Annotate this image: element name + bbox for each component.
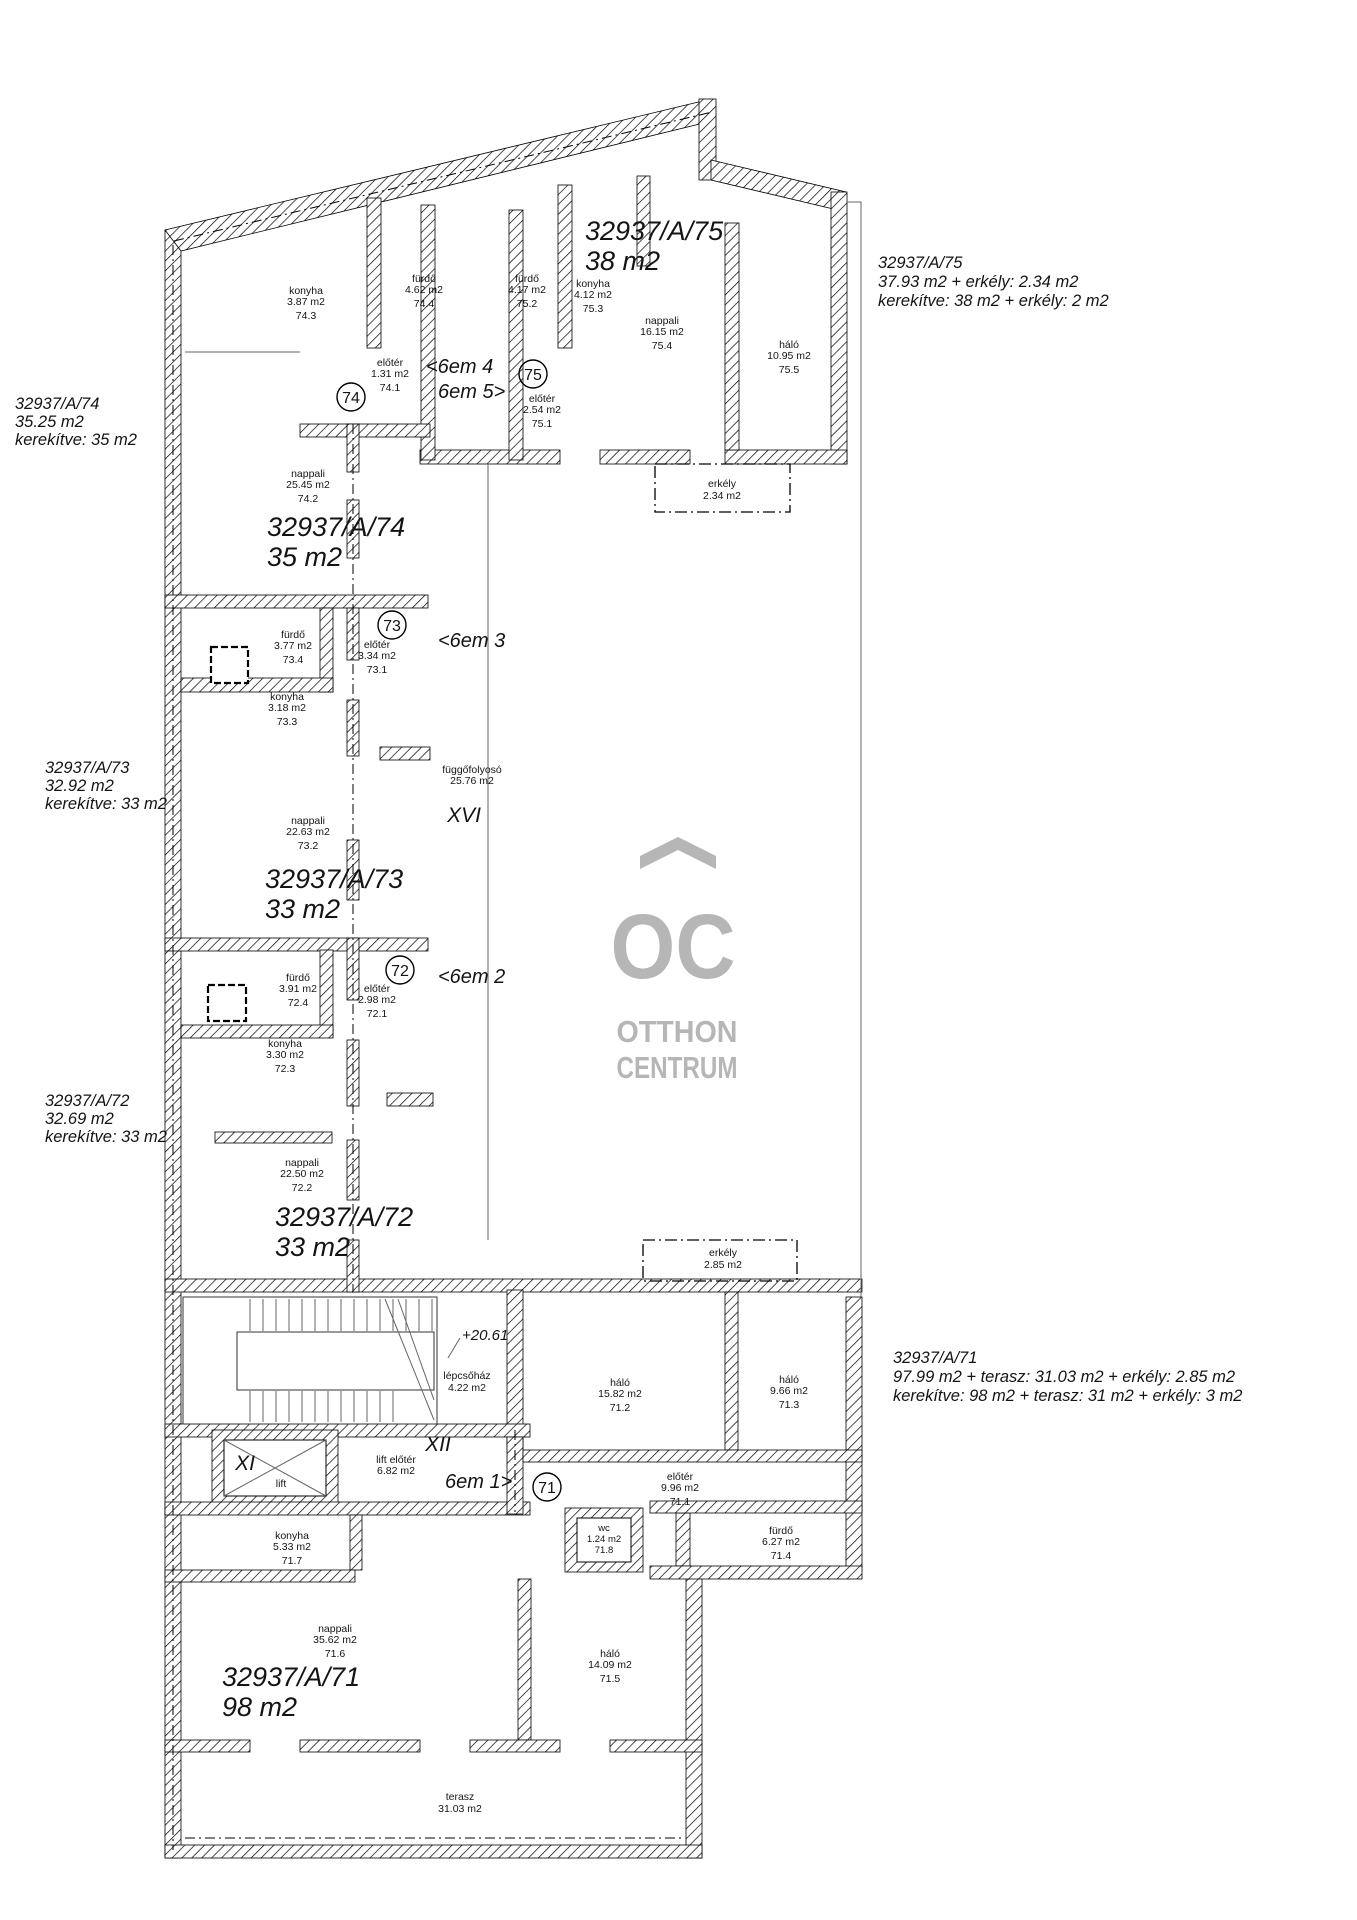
- apt71-annotation-l1: 32937/A/71: [893, 1349, 977, 1367]
- room-74-2-code: 74.2: [298, 493, 319, 505]
- wall-apt74-apt73: [165, 595, 428, 608]
- stair-treads-bottom: [250, 1391, 393, 1422]
- wall-segment: [320, 950, 333, 1037]
- apt73-annotation-l3: kerekítve: 33 m2: [45, 795, 167, 813]
- level-mark-label: +20.61: [462, 1327, 508, 1344]
- apt74-annotation-l3: kerekítve: 35 m2: [15, 431, 137, 449]
- stair-rail: [237, 1332, 434, 1390]
- apt71-annotation-l3: kerekítve: 98 m2 + terasz: 31 m2 + erkél…: [893, 1387, 1242, 1405]
- room-74-3-area: 3.87 m2: [287, 296, 325, 308]
- floor-ref-6em2: <6em 2: [438, 966, 505, 988]
- room-72-2-code: 72.2: [292, 1182, 313, 1194]
- room-71-7-area: 5.33 m2: [273, 1541, 311, 1553]
- room-75-1-area: 2.54 m2: [523, 404, 561, 416]
- room-72-4-code: 72.4: [288, 997, 309, 1009]
- apt72-annotation-l2: 32.69 m2: [45, 1110, 114, 1128]
- unit-number-74: 74: [342, 390, 360, 407]
- wall-segment: [470, 1740, 560, 1752]
- room-73-1-area: 3.34 m2: [358, 650, 396, 662]
- wall-hatch-group: [165, 99, 862, 1858]
- room-71-8-area: 1.24 m2: [587, 1534, 621, 1545]
- room-71-2-area: 15.82 m2: [598, 1388, 642, 1400]
- room-72-1-code: 72.1: [367, 1008, 388, 1020]
- staircase-name: lépcsőház: [443, 1370, 490, 1382]
- apt74-annotation-l1: 32937/A/74: [15, 395, 99, 413]
- unit-number-75: 75: [524, 367, 542, 384]
- terrace-area: 31.03 m2: [438, 1803, 482, 1815]
- room-75-2-area: 4.17 m2: [508, 284, 546, 296]
- room-71-1-area: 9.96 m2: [661, 1482, 699, 1494]
- unit-number-72: 72: [391, 963, 409, 980]
- floor-ref-6em1: 6em 1>: [445, 1471, 512, 1493]
- room-74-1-code: 74.1: [380, 382, 401, 394]
- unit-circle-74: 74: [337, 383, 365, 411]
- room-73-4-area: 3.77 m2: [274, 640, 312, 652]
- staircase-area: 4.22 m2: [448, 1382, 486, 1394]
- apt71-annotation-l2: 97.99 m2 + terasz: 31.03 m2 + erkély: 2.…: [893, 1368, 1235, 1386]
- wall-segment: [725, 223, 739, 450]
- terrace-name: terasz: [446, 1791, 475, 1803]
- apt75-unit-label-l1: 32937/A/75: [585, 216, 724, 246]
- wall-segment: [300, 1740, 420, 1752]
- room-73-2-area: 22.63 m2: [286, 826, 330, 838]
- otthon-centrum-logo: OC OTTHON CENTRUM: [611, 837, 738, 1085]
- room-73-4-code: 73.4: [283, 654, 304, 666]
- wall-segment: [350, 1515, 362, 1570]
- stair-break-line: [398, 1299, 434, 1400]
- side-annotations: 32937/A/74 35.25 m2 kerekítve: 35 m2 329…: [15, 254, 1242, 1405]
- wall-segment: [558, 185, 572, 348]
- right-wall-mid: [846, 1297, 862, 1568]
- room-72-3-code: 72.3: [275, 1063, 296, 1075]
- lift-lobby-area: 6.82 m2: [377, 1465, 415, 1477]
- room-71-3-code: 71.3: [779, 1399, 800, 1411]
- apt71-unit-label-l1: 32937/A/71: [222, 1662, 360, 1692]
- room-75-2-code: 75.2: [517, 298, 538, 310]
- room-73-3-code: 73.3: [277, 716, 298, 728]
- unit-number-73: 73: [383, 618, 401, 635]
- room-73-2-code: 73.2: [298, 840, 319, 852]
- wall-segment: [165, 1570, 355, 1582]
- floorplan-page: OC OTTHON CENTRUM 32937/A/74 35.25 m2 ke…: [0, 0, 1357, 1920]
- wall-segment: [421, 205, 435, 460]
- wall-segment: [610, 1740, 702, 1752]
- wall-segment: [725, 450, 847, 464]
- balcony-75-area: 2.34 m2: [703, 490, 741, 502]
- apt72-annotation-l1: 32937/A/72: [45, 1092, 129, 1110]
- room-74-3-code: 74.3: [296, 310, 317, 322]
- room-71-5-area: 14.09 m2: [588, 1659, 632, 1671]
- wall-segment: [523, 1450, 862, 1462]
- wall-segment: [215, 1132, 332, 1143]
- room-72-3-area: 3.30 m2: [266, 1049, 304, 1061]
- wall-segment: [181, 678, 333, 692]
- room-72-2-area: 22.50 m2: [280, 1168, 324, 1180]
- apt75-annotation-l2: 37.93 m2 + erkély: 2.34 m2: [878, 273, 1078, 291]
- property-line: [847, 202, 861, 1297]
- right-wall-lower: [686, 1568, 702, 1858]
- apt75-annotation-l3: kerekítve: 38 m2 + erkély: 2 m2: [878, 292, 1109, 310]
- room-75-3-code: 75.3: [583, 303, 604, 315]
- logo-line1: OTTHON: [617, 1014, 738, 1049]
- room-75-5-code: 75.5: [779, 364, 800, 376]
- stair-outline: [183, 1297, 437, 1424]
- floor-ref-6em4: <6em 4: [426, 356, 493, 378]
- floor-ref-6em3: <6em 3: [438, 630, 505, 652]
- wall-segment: [367, 198, 381, 348]
- room-75-4-area: 16.15 m2: [640, 326, 684, 338]
- wall-segment: [725, 1292, 738, 1450]
- lift-lobby-roman: XII: [424, 1433, 451, 1456]
- corridor-roman: XVI: [446, 804, 481, 827]
- lift-name: lift: [276, 1478, 287, 1490]
- apt73-annotation-l2: 32.92 m2: [45, 777, 114, 795]
- wall-segment: [420, 450, 560, 464]
- wall-segment: [509, 210, 523, 460]
- floor-ref-6em5: 6em 5>: [438, 381, 505, 403]
- room-71-3-area: 9.66 m2: [770, 1385, 808, 1397]
- wall-apt73-apt72: [165, 938, 428, 951]
- room-71-4-code: 71.4: [771, 1550, 792, 1562]
- unit-circle-75: 75: [519, 360, 547, 388]
- apt73-unit-label-l2: 33 m2: [265, 894, 340, 924]
- floorplan-drawing: OC OTTHON CENTRUM 32937/A/74 35.25 m2 ke…: [0, 0, 1357, 1920]
- wall-segment: [165, 1502, 530, 1515]
- apt73-unit-label-l1: 32937/A/73: [265, 864, 403, 894]
- apt75-annotation-l1: 32937/A/75: [878, 254, 963, 272]
- top-right-wall: [711, 160, 846, 212]
- logo-line2: CENTRUM: [617, 1050, 738, 1085]
- wall-segment: [518, 1579, 531, 1740]
- shaft-duct-72: [208, 985, 246, 1021]
- floor-references: <6em 4 6em 5> <6em 3 <6em 2 6em 1> +20.6…: [426, 356, 512, 1493]
- room-72-4-area: 3.91 m2: [279, 983, 317, 995]
- wall-segment: [387, 1093, 433, 1106]
- room-73-3-area: 3.18 m2: [268, 702, 306, 714]
- room-75-4-code: 75.4: [652, 340, 673, 352]
- balcony-75-name: erkély: [708, 478, 737, 490]
- room-74-2-area: 25.45 m2: [286, 479, 330, 491]
- stair-break-line: [385, 1299, 434, 1420]
- shaft-duct-73: [211, 647, 248, 683]
- room-71-5-code: 71.5: [600, 1673, 621, 1685]
- room-71-2-code: 71.2: [610, 1402, 631, 1414]
- apt74-annotation-l2: 35.25 m2: [15, 413, 84, 431]
- level-mark-tick: [448, 1338, 460, 1358]
- outer-bottom-wall: [165, 1845, 702, 1858]
- room-74-1-area: 1.31 m2: [371, 368, 409, 380]
- apt71-unit-label-l2: 98 m2: [222, 1692, 297, 1722]
- balcony-71-name: erkély: [709, 1247, 738, 1259]
- right-wall-upper: [831, 192, 847, 464]
- room-74-4-area: 4.62 m2: [405, 284, 443, 296]
- room-71-8-name: wc: [597, 1523, 610, 1534]
- apt72-unit-label-l2: 33 m2: [275, 1232, 350, 1262]
- wall-segment: [676, 1513, 690, 1566]
- apt75-unit-label-l2: 38 m2: [585, 246, 660, 276]
- room-74-4-code: 74.4: [414, 298, 435, 310]
- wall-segment: [380, 747, 430, 760]
- corridor-area: 25.76 m2: [450, 775, 494, 787]
- room-71-1-code: 71.1: [670, 1496, 691, 1508]
- unit-circle-73: 73: [378, 611, 406, 639]
- apt73-annotation-l1: 32937/A/73: [45, 759, 130, 777]
- apt74-unit-label-l1: 32937/A/74: [267, 512, 405, 542]
- unit-circle-72: 72: [386, 956, 414, 984]
- room-71-8-code: 71.8: [595, 1545, 614, 1556]
- wall-segment: [650, 1566, 862, 1579]
- room-72-1-area: 2.98 m2: [358, 994, 396, 1006]
- room-71-6-code: 71.6: [325, 1648, 346, 1660]
- room-73-1-code: 73.1: [367, 664, 388, 676]
- unit-number-71: 71: [538, 1480, 556, 1497]
- balcony-71-area: 2.85 m2: [704, 1259, 742, 1271]
- room-75-1-code: 75.1: [532, 418, 553, 430]
- room-71-6-area: 35.62 m2: [313, 1634, 357, 1646]
- apt72-annotation-l3: kerekítve: 33 m2: [45, 1128, 167, 1146]
- lift-roman: XI: [234, 1452, 255, 1475]
- room-71-4-area: 6.27 m2: [762, 1536, 800, 1548]
- room-75-5-area: 10.95 m2: [767, 350, 811, 362]
- unit-circle-71: 71: [533, 1473, 561, 1501]
- wall-segment: [300, 424, 430, 437]
- wall-segment: [165, 1740, 250, 1752]
- logo-monogram: OC: [611, 896, 736, 998]
- logo-roof-icon: [640, 837, 716, 869]
- apt74-unit-label-l2: 35 m2: [267, 542, 342, 572]
- room-75-3-area: 4.12 m2: [574, 289, 612, 301]
- wall-segment: [600, 450, 690, 464]
- room-71-7-code: 71.7: [282, 1555, 303, 1567]
- stair-treads-top: [250, 1299, 432, 1331]
- apt72-unit-label-l1: 32937/A/72: [275, 1202, 413, 1232]
- wall-segment: [181, 1025, 333, 1038]
